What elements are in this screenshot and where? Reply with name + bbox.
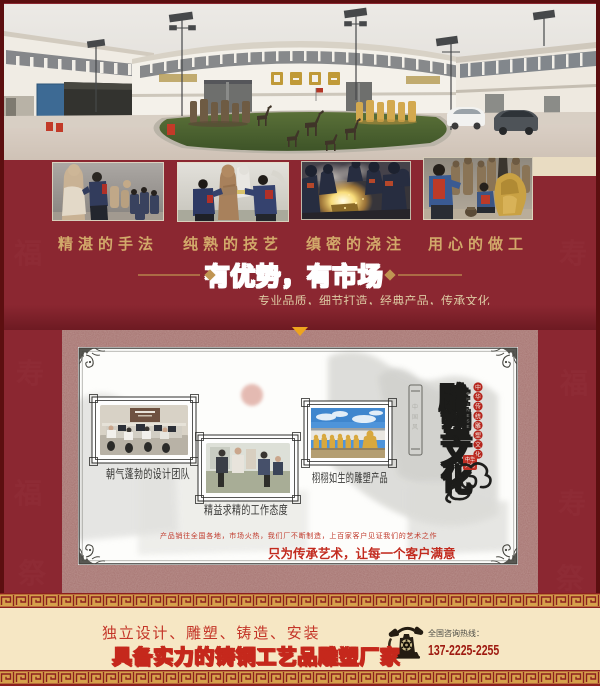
svg-text:福: 福 [559, 368, 588, 399]
svg-text:文: 文 [475, 441, 481, 449]
svg-text:雕: 雕 [475, 422, 481, 430]
svg-text:朝气蓬勃的设计团队: 朝气蓬勃的设计团队 [106, 466, 190, 481]
svg-text:中华: 中华 [465, 456, 475, 463]
svg-text:CHINESE: CHINESE [465, 391, 470, 430]
svg-text:塑: 塑 [475, 432, 481, 440]
svg-text:统: 统 [475, 412, 481, 420]
svg-text:风: 风 [412, 424, 418, 431]
svg-text:祭: 祭 [18, 558, 47, 589]
svg-text:中: 中 [412, 403, 418, 411]
svg-text:中: 中 [475, 384, 481, 392]
svg-text:祭: 祭 [556, 563, 585, 594]
svg-text:福: 福 [13, 478, 42, 509]
svg-text:寿: 寿 [559, 238, 587, 269]
svg-text:寿: 寿 [16, 358, 44, 389]
svg-text:福: 福 [13, 238, 42, 269]
svg-text:精益求精的工作态度: 精益求精的工作态度 [204, 502, 288, 517]
svg-text:传: 传 [475, 403, 481, 411]
svg-text:华: 华 [475, 393, 481, 401]
svg-text:栩栩如生的雕塑产品: 栩栩如生的雕塑产品 [312, 470, 388, 485]
svg-text:寿: 寿 [558, 488, 586, 519]
svg-text:国: 国 [412, 414, 418, 421]
